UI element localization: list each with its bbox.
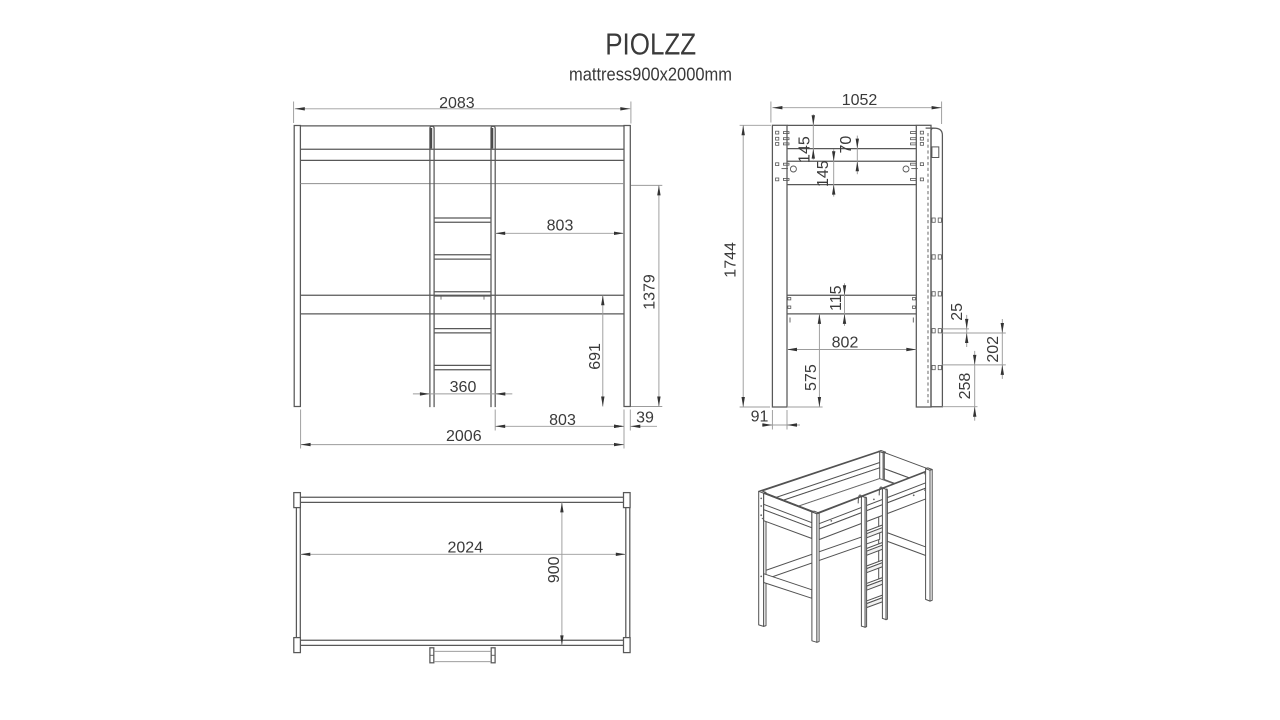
- svg-text:691: 691: [587, 343, 604, 370]
- svg-text:803: 803: [549, 412, 576, 429]
- svg-text:1744: 1744: [723, 242, 740, 278]
- svg-text:803: 803: [547, 217, 574, 234]
- svg-text:PIOLZZ: PIOLZZ: [605, 27, 696, 62]
- svg-text:575: 575: [803, 364, 820, 391]
- svg-text:91: 91: [751, 409, 769, 426]
- svg-text:145: 145: [815, 160, 832, 187]
- svg-text:39: 39: [636, 410, 654, 427]
- svg-text:2024: 2024: [448, 539, 484, 556]
- svg-text:25: 25: [949, 303, 966, 321]
- svg-text:1379: 1379: [642, 274, 659, 310]
- svg-text:2083: 2083: [439, 95, 475, 112]
- svg-text:115: 115: [828, 285, 845, 311]
- svg-text:145: 145: [797, 136, 814, 163]
- svg-text:mattress900x2000mm: mattress900x2000mm: [569, 63, 732, 84]
- svg-text:360: 360: [450, 379, 477, 396]
- svg-text:202: 202: [985, 336, 1002, 363]
- svg-text:2006: 2006: [446, 428, 482, 445]
- svg-text:802: 802: [832, 335, 859, 352]
- svg-text:900: 900: [546, 556, 563, 583]
- svg-text:70: 70: [838, 136, 855, 154]
- svg-text:1052: 1052: [842, 92, 878, 109]
- svg-text:258: 258: [957, 373, 974, 400]
